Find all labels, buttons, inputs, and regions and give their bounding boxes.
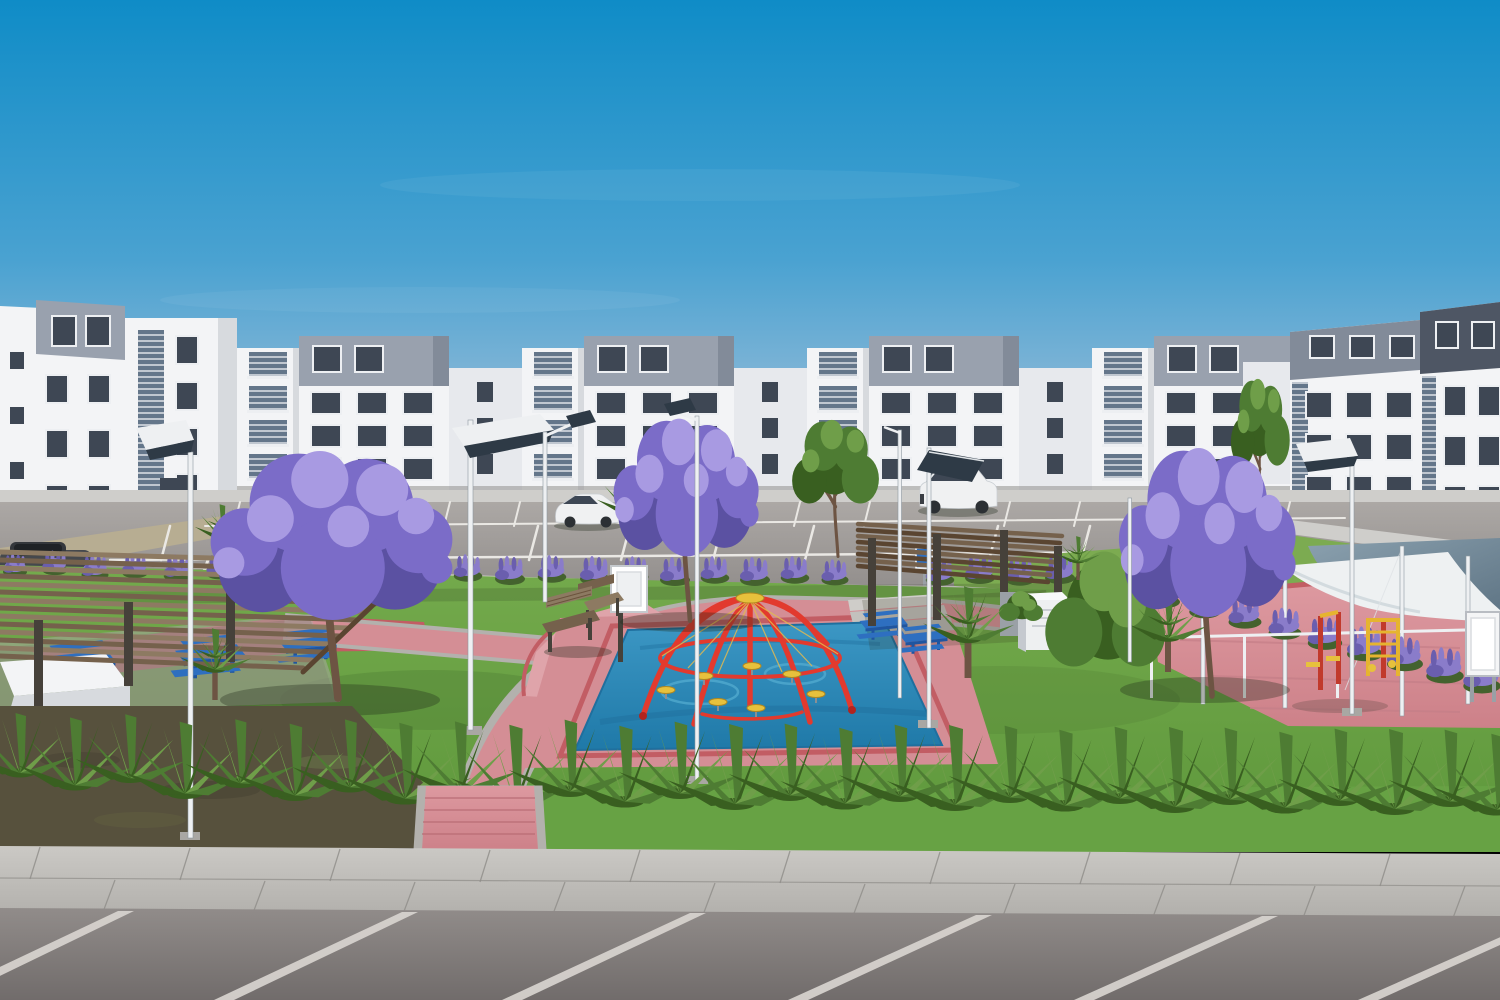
window xyxy=(881,392,911,414)
window xyxy=(1444,436,1466,466)
foreground-pink-path xyxy=(414,786,546,850)
window xyxy=(762,418,778,438)
window xyxy=(598,346,626,372)
wheel xyxy=(565,517,576,528)
window xyxy=(10,407,24,424)
window xyxy=(1047,382,1063,402)
window xyxy=(52,316,76,346)
window xyxy=(88,430,110,458)
gym-seat xyxy=(1326,656,1340,661)
window xyxy=(10,462,24,479)
window xyxy=(176,336,198,364)
window xyxy=(46,430,68,458)
window xyxy=(1310,336,1334,358)
window xyxy=(357,392,387,414)
window xyxy=(403,392,433,414)
window xyxy=(1212,392,1242,414)
window xyxy=(1390,336,1414,358)
sidewalk xyxy=(0,846,1500,918)
window xyxy=(596,425,626,447)
stair-windows xyxy=(1047,382,1063,474)
cap-windows xyxy=(1310,336,1414,358)
gym-post xyxy=(1381,620,1386,678)
gym-pedal xyxy=(1368,664,1376,672)
window xyxy=(1166,392,1196,414)
pergola-post xyxy=(34,620,43,706)
window xyxy=(477,382,493,402)
window xyxy=(313,346,341,372)
window xyxy=(1478,436,1500,466)
wheel xyxy=(976,501,989,514)
pergola-post xyxy=(933,534,941,620)
window xyxy=(311,425,341,447)
gym-post xyxy=(1336,612,1341,684)
window xyxy=(1047,418,1063,438)
window xyxy=(596,392,626,414)
window xyxy=(403,458,433,480)
foreground-parking xyxy=(0,908,1500,1000)
window xyxy=(1472,322,1494,348)
window xyxy=(1168,346,1196,372)
window xyxy=(1346,392,1372,418)
window xyxy=(355,346,383,372)
gym-seat xyxy=(1306,662,1320,667)
gym-post xyxy=(1318,616,1323,690)
dome-foot xyxy=(848,706,856,714)
window xyxy=(883,346,911,372)
window xyxy=(88,375,110,403)
gym-pedal xyxy=(1388,660,1396,668)
window xyxy=(1210,346,1238,372)
window xyxy=(477,454,493,474)
window xyxy=(1436,322,1458,348)
grille xyxy=(920,494,924,504)
dome-hub xyxy=(736,593,764,603)
window xyxy=(46,375,68,403)
window xyxy=(403,425,433,447)
window xyxy=(10,352,24,369)
window xyxy=(762,382,778,402)
pergola-post xyxy=(124,602,133,686)
window xyxy=(86,316,110,346)
window xyxy=(927,392,957,414)
window xyxy=(1047,454,1063,474)
stair-windows xyxy=(762,382,778,474)
window xyxy=(762,454,778,474)
wheel xyxy=(601,517,612,528)
window xyxy=(1350,336,1374,358)
window xyxy=(973,392,1003,414)
cloud-wisp xyxy=(160,287,680,313)
window xyxy=(176,382,198,410)
window xyxy=(1444,386,1466,416)
window xyxy=(311,392,341,414)
window xyxy=(925,346,953,372)
pergola-post xyxy=(868,538,876,626)
window xyxy=(640,346,668,372)
window xyxy=(881,458,911,480)
dome-foot xyxy=(639,712,647,720)
window xyxy=(1386,434,1412,460)
window xyxy=(1306,392,1332,418)
window xyxy=(357,425,387,447)
window xyxy=(1166,425,1196,447)
render-viewport xyxy=(0,0,1500,1000)
window xyxy=(973,425,1003,447)
cloud-wisp xyxy=(380,169,1020,201)
window xyxy=(1386,392,1412,418)
window xyxy=(927,425,957,447)
tree-shadow xyxy=(1120,677,1290,703)
solar-lamp xyxy=(1128,498,1132,662)
window xyxy=(1478,386,1500,416)
scene-svg xyxy=(0,0,1500,1000)
